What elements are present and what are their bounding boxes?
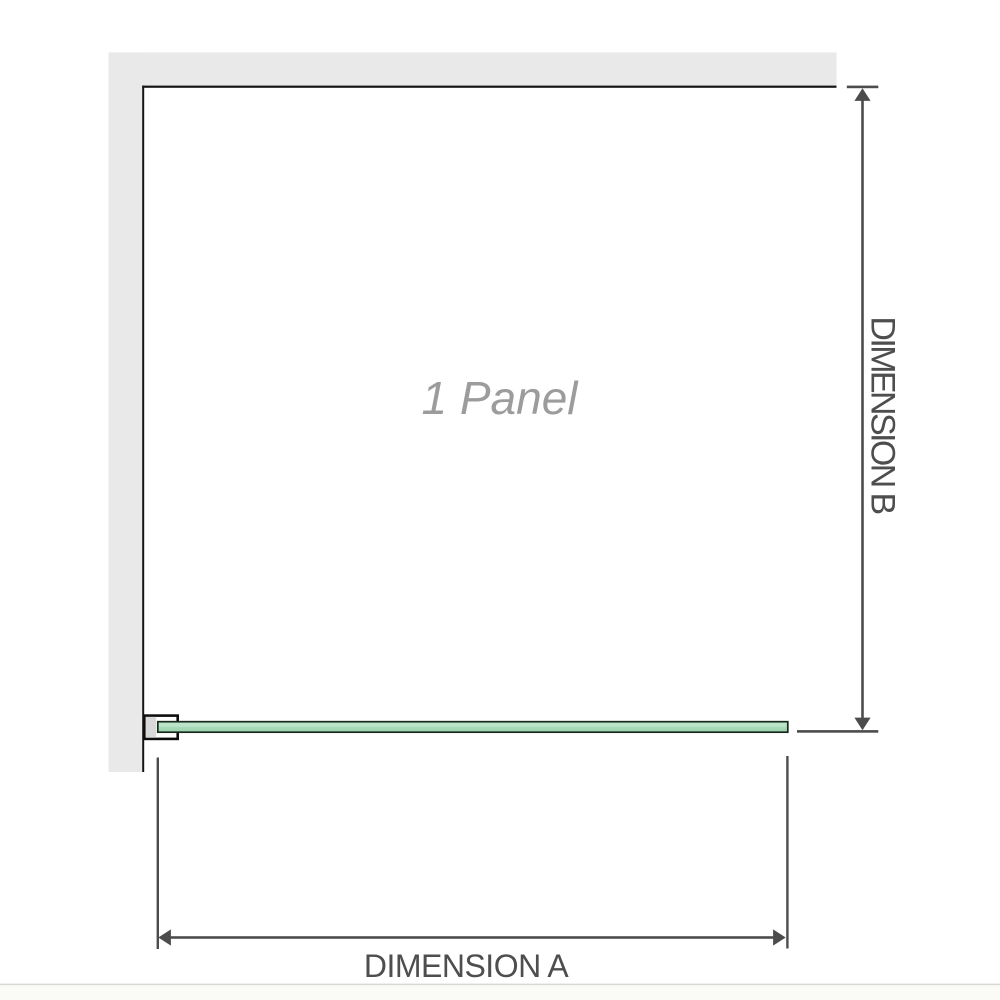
svg-text:DIMENSION A: DIMENSION A xyxy=(364,948,569,984)
svg-text:1 Panel: 1 Panel xyxy=(421,372,579,424)
svg-text:DIMENSION B: DIMENSION B xyxy=(864,316,902,513)
